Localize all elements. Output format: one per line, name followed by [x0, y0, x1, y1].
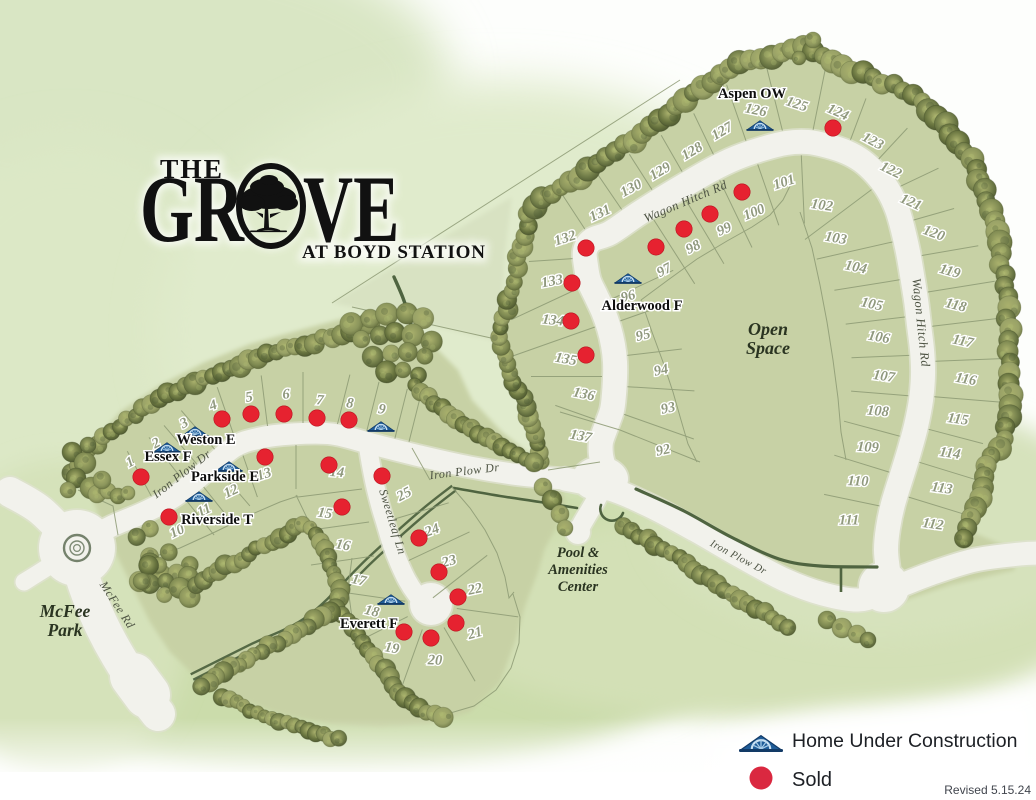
svg-text:Parkside E: Parkside E — [191, 469, 259, 485]
svg-text:111: 111 — [839, 513, 859, 529]
svg-text:Pool &: Pool & — [557, 545, 600, 561]
svg-text:AT BOYD STATION: AT BOYD STATION — [302, 242, 486, 263]
svg-text:102: 102 — [810, 196, 834, 215]
svg-text:112: 112 — [921, 515, 944, 534]
svg-text:Weston E: Weston E — [176, 432, 235, 448]
svg-text:Alderwood F: Alderwood F — [602, 298, 683, 314]
svg-text:McFee: McFee — [39, 601, 91, 621]
svg-text:Park: Park — [47, 620, 83, 640]
svg-text:15: 15 — [317, 505, 334, 523]
svg-text:109: 109 — [857, 439, 880, 456]
svg-text:115: 115 — [946, 410, 969, 429]
svg-text:19: 19 — [383, 639, 400, 657]
svg-text:Space: Space — [746, 338, 790, 358]
svg-text:Riverside T: Riverside T — [181, 512, 253, 528]
svg-text:108: 108 — [866, 403, 890, 421]
svg-text:Sold: Sold — [792, 769, 832, 791]
svg-text:20: 20 — [426, 652, 442, 669]
svg-text:114: 114 — [938, 444, 961, 463]
svg-text:GR: GR — [140, 156, 245, 261]
svg-text:Home Under Construction: Home Under Construction — [792, 730, 1017, 752]
svg-text:110: 110 — [847, 473, 868, 490]
svg-text:Center: Center — [558, 579, 599, 595]
svg-text:22: 22 — [465, 580, 483, 599]
svg-text:Open: Open — [748, 319, 788, 339]
svg-text:Revised 5.15.24: Revised 5.15.24 — [944, 783, 1031, 797]
svg-text:113: 113 — [930, 479, 953, 498]
svg-text:Amenities: Amenities — [547, 562, 608, 578]
svg-text:Everett F: Everett F — [340, 616, 398, 632]
svg-text:107: 107 — [872, 367, 897, 386]
svg-text:134: 134 — [541, 311, 564, 329]
svg-text:Essex F: Essex F — [144, 449, 191, 465]
svg-text:Aspen OW: Aspen OW — [718, 86, 787, 102]
